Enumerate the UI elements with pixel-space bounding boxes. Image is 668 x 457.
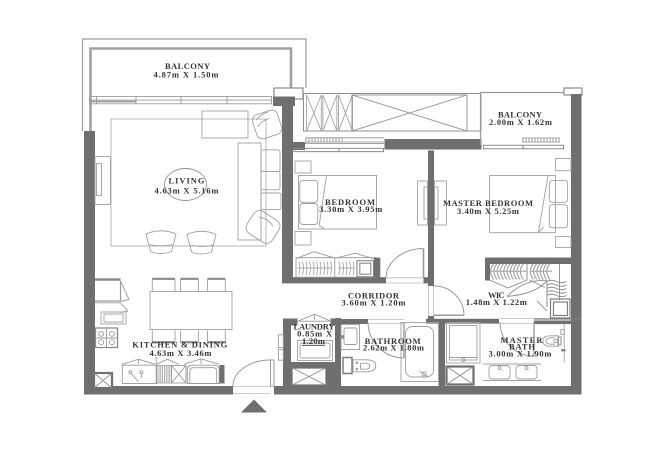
svg-text:2.00m X 1.62m: 2.00m X 1.62m — [489, 117, 552, 127]
svg-text:LIVING: LIVING — [169, 176, 205, 186]
svg-text:4.63m X 3.46m: 4.63m X 3.46m — [150, 348, 212, 358]
svg-text:3.40m X 5.25m: 3.40m X 5.25m — [457, 206, 519, 216]
svg-text:1.20m: 1.20m — [302, 336, 325, 346]
svg-text:3.30m X 3.95m: 3.30m X 3.95m — [319, 204, 382, 214]
svg-text:1.48m X 1.22m: 1.48m X 1.22m — [466, 297, 527, 307]
svg-text:3.60m X 1.20m: 3.60m X 1.20m — [342, 298, 406, 308]
svg-text:4.87m X 1.50m: 4.87m X 1.50m — [154, 70, 219, 80]
svg-text:3.00m X 1.90m: 3.00m X 1.90m — [489, 349, 552, 359]
svg-text:4.63m X 5.16m: 4.63m X 5.16m — [155, 186, 219, 196]
svg-text:2.62m X 1.80m: 2.62m X 1.80m — [363, 343, 424, 353]
